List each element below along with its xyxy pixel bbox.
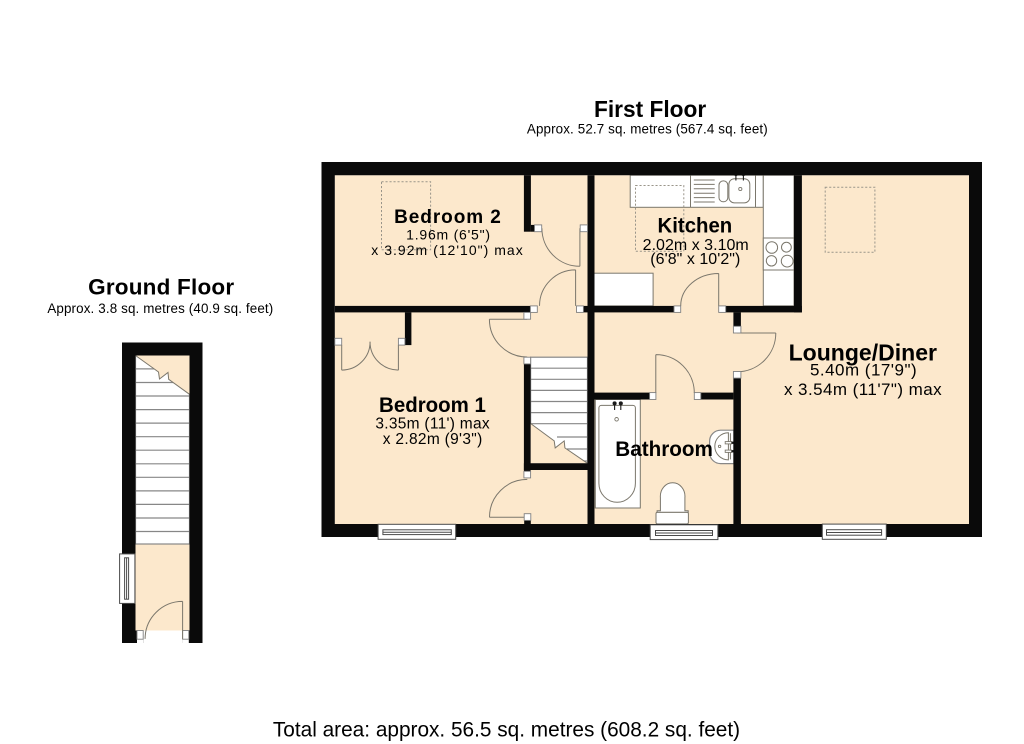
svg-text:Approx. 3.8 sq. metres (40.9 s: Approx. 3.8 sq. metres (40.9 sq. feet) — [47, 301, 273, 316]
svg-text:Ground Floor: Ground Floor — [88, 274, 234, 299]
svg-text:5.40m (17'9"): 5.40m (17'9") — [810, 360, 917, 379]
svg-text:Total area: approx. 56.5 sq. m: Total area: approx. 56.5 sq. metres (608… — [273, 717, 740, 741]
svg-text:x 3.92m (12'10") max: x 3.92m (12'10") max — [371, 242, 522, 258]
svg-text:x 3.54m (11'7") max: x 3.54m (11'7") max — [784, 380, 942, 399]
svg-text:(6'8" x 10'2"): (6'8" x 10'2") — [650, 251, 740, 268]
svg-text:Approx. 52.7 sq. metres (567.4: Approx. 52.7 sq. metres (567.4 sq. feet) — [527, 121, 768, 136]
svg-text:Bedroom 1: Bedroom 1 — [379, 393, 486, 417]
svg-text:Kitchen: Kitchen — [658, 215, 733, 238]
svg-text:Bathroom: Bathroom — [615, 438, 713, 461]
svg-text:First Floor: First Floor — [594, 96, 706, 122]
svg-text:Bedroom 2: Bedroom 2 — [394, 207, 501, 228]
svg-text:1.96m (6'5"): 1.96m (6'5") — [406, 227, 490, 243]
svg-text:x 2.82m (9'3"): x 2.82m (9'3") — [383, 431, 483, 448]
svg-text:3.35m (11') max: 3.35m (11') max — [375, 415, 489, 432]
